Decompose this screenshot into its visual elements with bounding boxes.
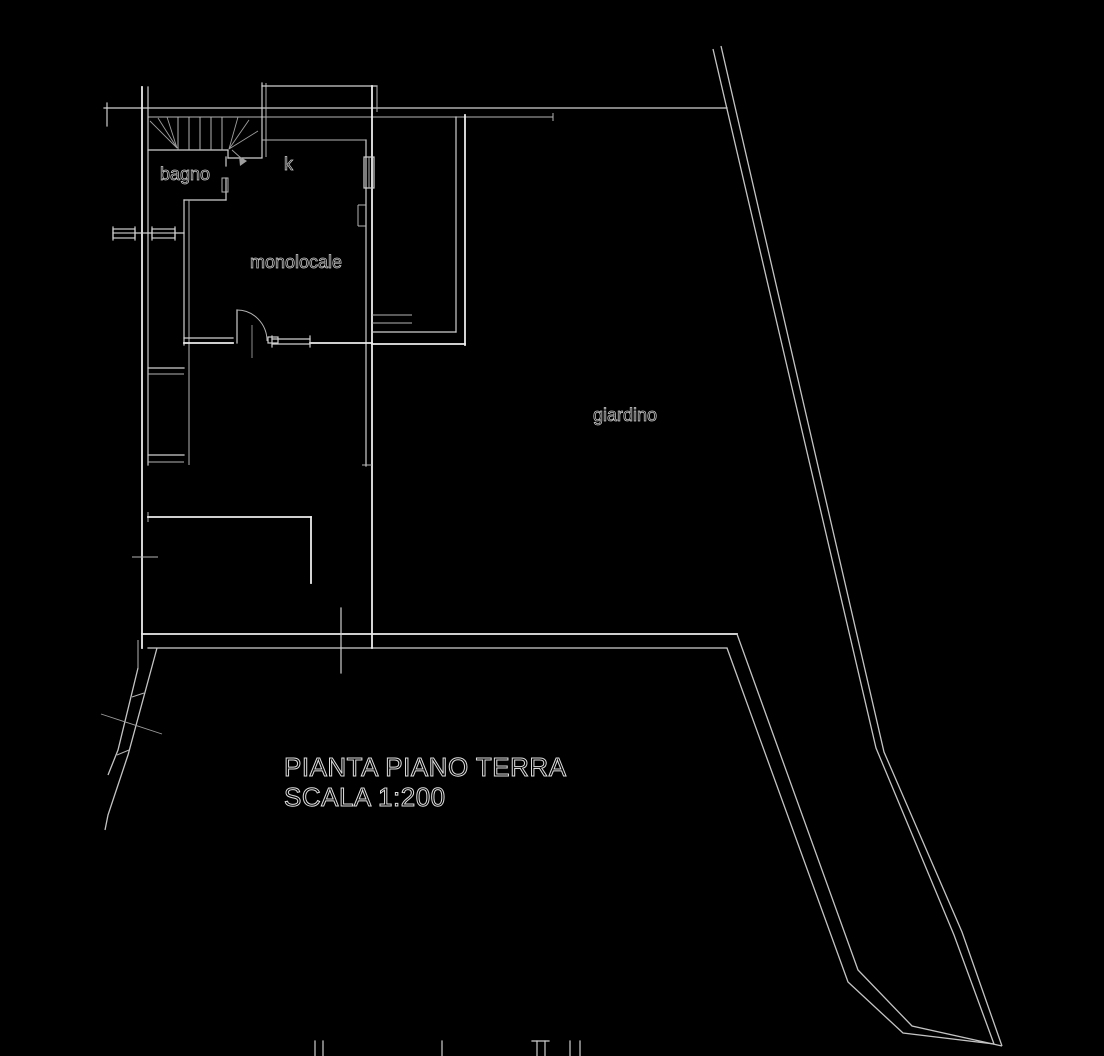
wall-niche: [358, 205, 366, 226]
lower-court-walls: [148, 512, 341, 673]
property-boundary: [101, 46, 1002, 1046]
boundary-bottomleft-inner: [727, 648, 994, 1044]
door-jamb-block: [268, 337, 278, 343]
plan-scale: SCALA 1:200: [284, 782, 446, 812]
monolocale-label: monolocale: [250, 252, 342, 272]
bagno-window-right: [152, 227, 175, 240]
gate-segment: [101, 640, 162, 830]
title-block: PIANTA PIANO TERRA SCALA 1:200: [284, 752, 567, 812]
bagno-walls: [113, 157, 228, 465]
bottom-edge-marks: [315, 1041, 580, 1056]
floor-plan-canvas: bagno k monolocale giardino PIANTA PIANO…: [0, 0, 1104, 1056]
kitchen-label: k: [284, 154, 294, 174]
veranda-walls: [372, 115, 465, 345]
gate-bar-2: [117, 750, 129, 755]
gate-cross-line: [101, 714, 162, 734]
left-strip-dividers: [148, 368, 184, 462]
stair-winder-fan-left: [150, 117, 177, 148]
giardino-label: giardino: [593, 405, 657, 425]
plan-title: PIANTA PIANO TERRA: [284, 752, 567, 782]
gate-bar-1: [132, 693, 144, 697]
boundary-bottomleft-outer: [737, 634, 1002, 1046]
boundary-right-inner: [713, 49, 994, 1044]
bagno-window-left: [113, 227, 135, 240]
boundary-right-outer: [721, 46, 1002, 1046]
room-labels: bagno k monolocale giardino: [160, 154, 657, 425]
gate-slant-outer: [105, 648, 157, 830]
stair-winder-fan-right: [229, 117, 258, 149]
bagno-door-leaf: [222, 178, 228, 192]
bagno-label: bagno: [160, 164, 210, 184]
entrance-door: [237, 310, 278, 358]
staircase: [148, 117, 262, 166]
